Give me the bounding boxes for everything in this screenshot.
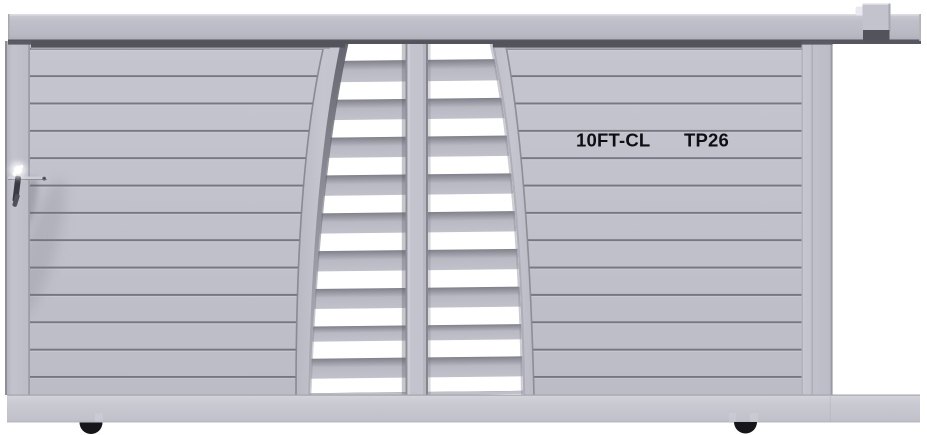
svg-text:10FT-CL: 10FT-CL <box>576 129 650 150</box>
svg-text:TP26: TP26 <box>684 129 729 150</box>
